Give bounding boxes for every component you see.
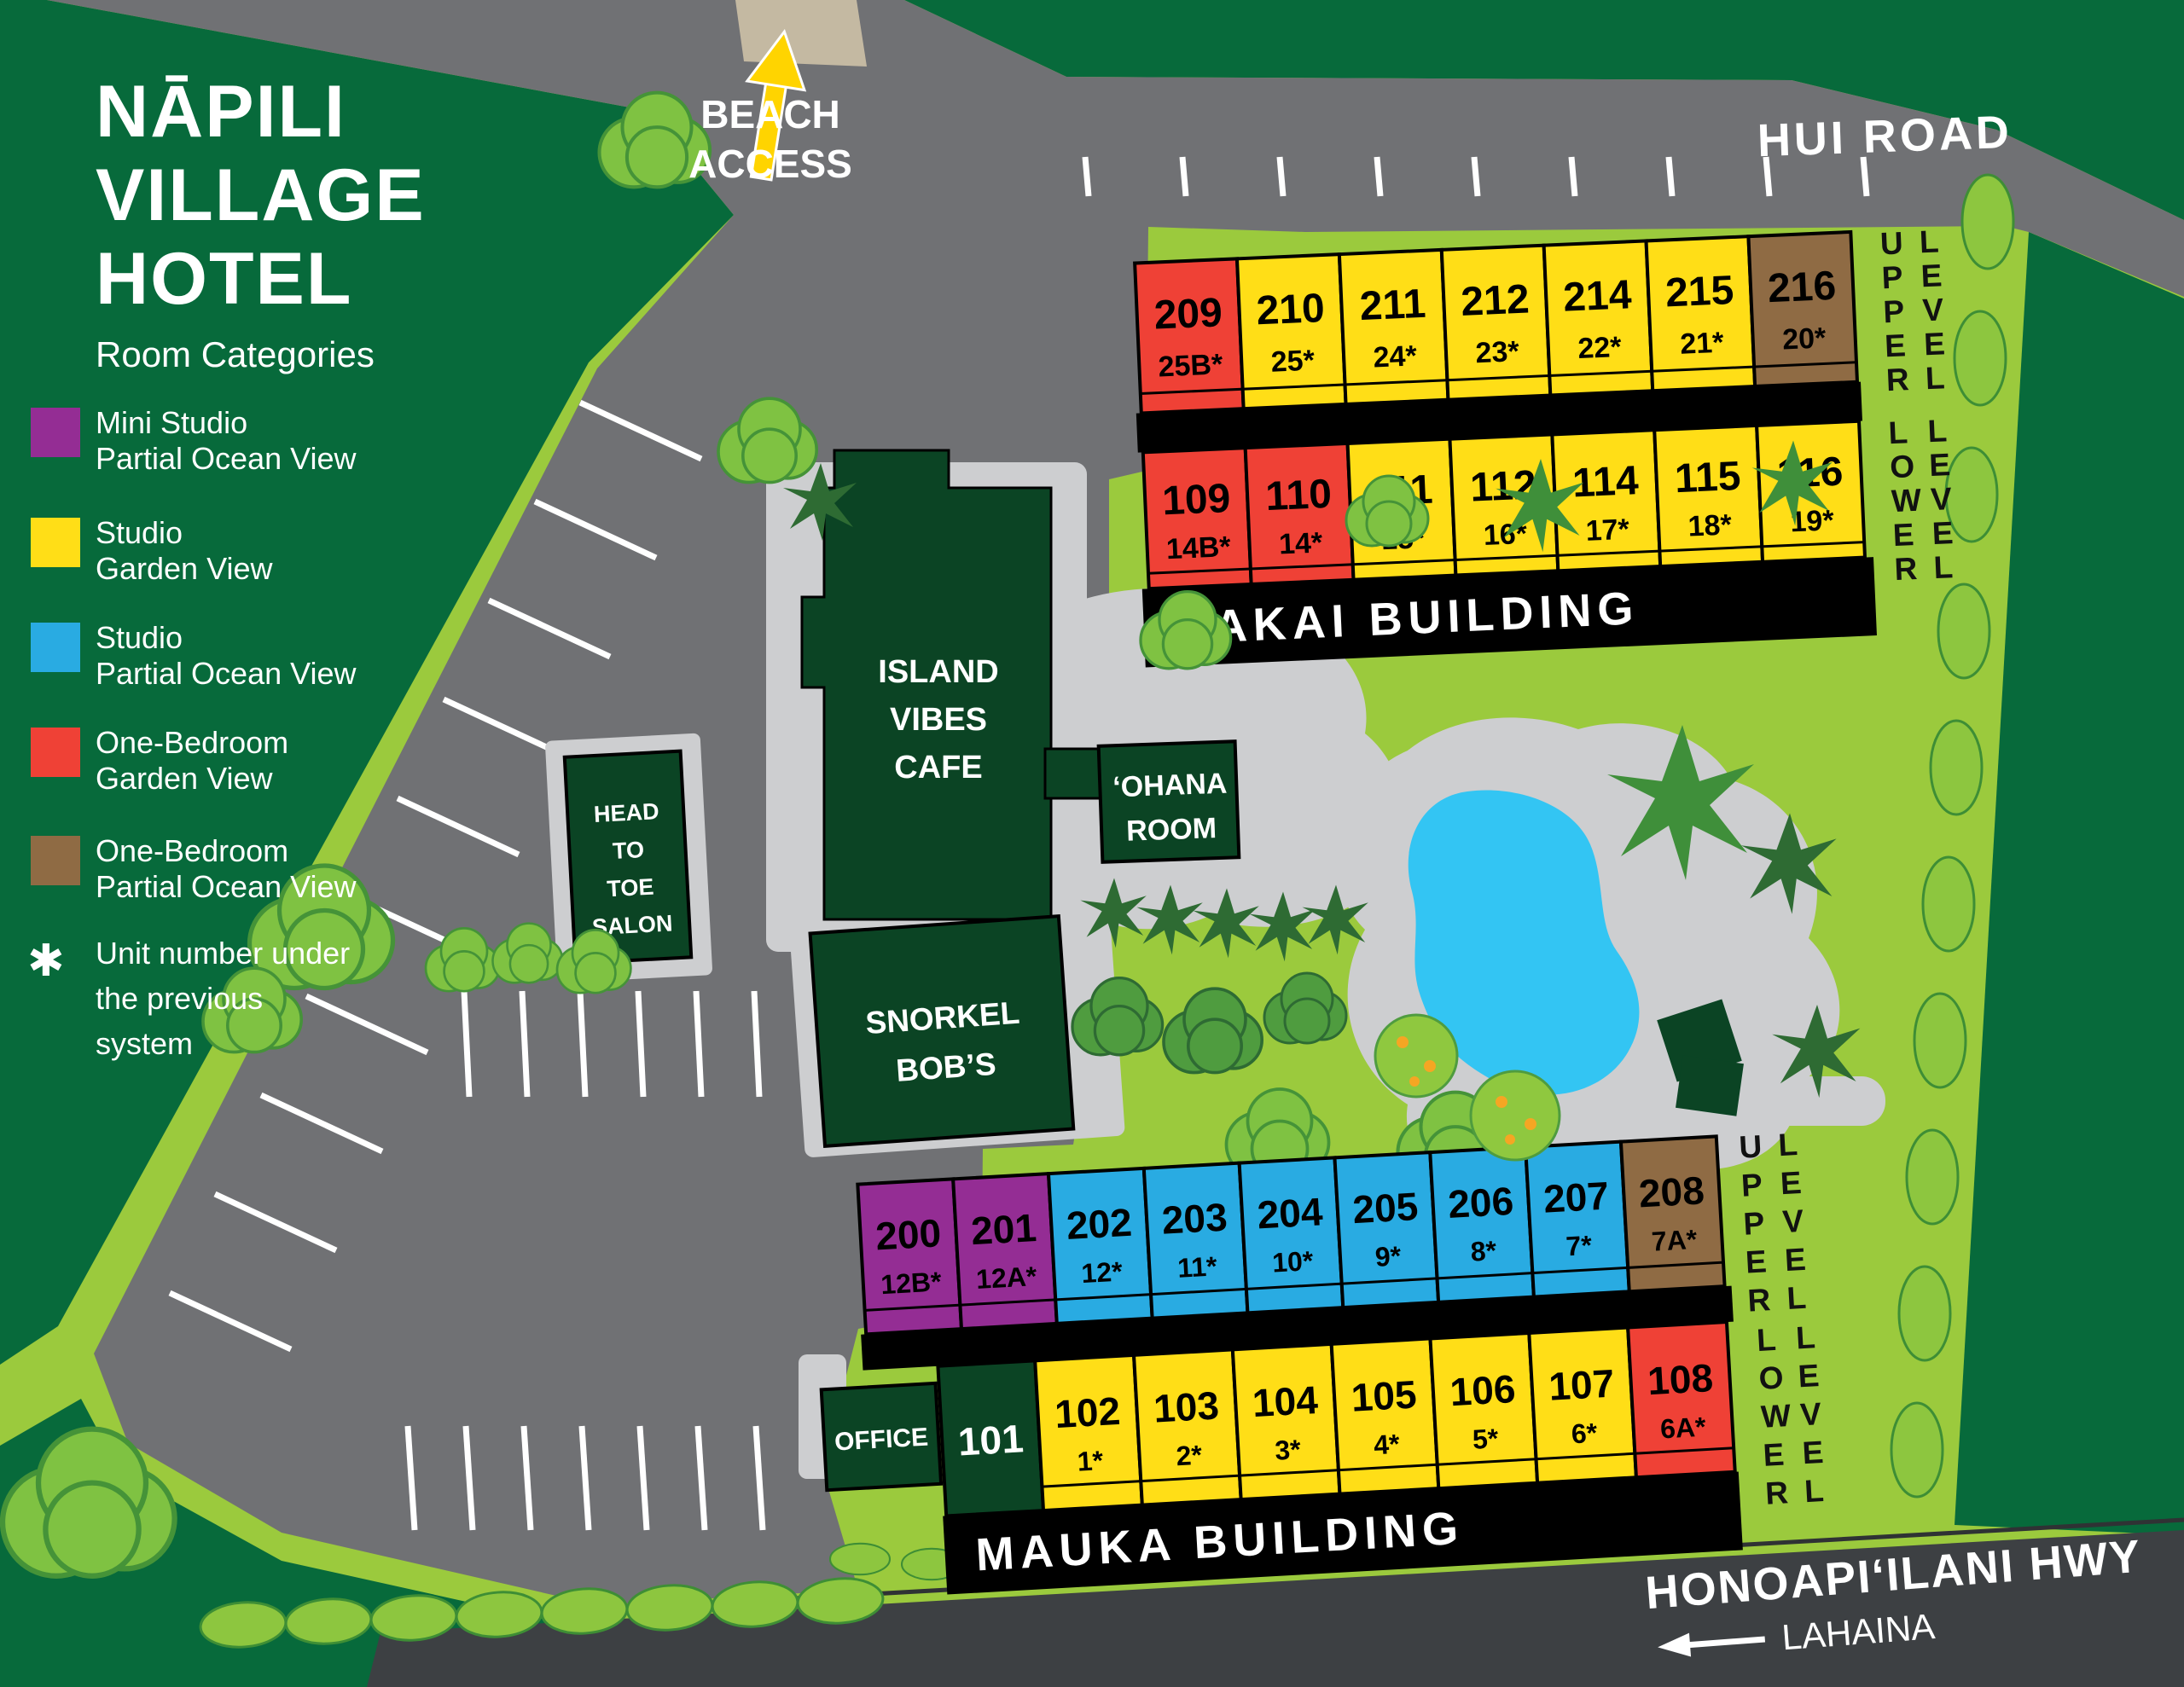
salon-label-line3: TOE — [607, 874, 655, 902]
legend-label: Partial Ocean View — [96, 441, 357, 476]
room-204-number: 204 — [1256, 1189, 1324, 1237]
napili-village-hotel-site-map: ISLAND VIBES CAFE ‘OHANA ROOM SNORKEL BO… — [0, 0, 2184, 1687]
room-210-number: 210 — [1256, 286, 1326, 333]
salon-building: HEAD TO TOE SALON — [565, 751, 691, 964]
room-105-old-number: 4* — [1373, 1429, 1401, 1461]
room-107-number: 107 — [1548, 1361, 1616, 1409]
cafe-building: ISLAND VIBES CAFE — [802, 450, 1051, 919]
legend-label: Studio — [96, 620, 183, 655]
cafe-label-line1: ISLAND — [878, 654, 998, 690]
room-102-old-number: 1* — [1077, 1445, 1105, 1477]
room-211-old-number: 24* — [1373, 339, 1418, 374]
room-109-number: 109 — [1161, 476, 1231, 524]
legend-swatch-red — [31, 728, 80, 777]
beach-access-label-line1: BEACH — [700, 92, 840, 136]
legend-label: Partial Ocean View — [96, 656, 357, 691]
room-104-old-number: 3* — [1274, 1434, 1302, 1466]
room-206-old-number: 8* — [1470, 1235, 1498, 1267]
room-202-number: 202 — [1066, 1200, 1134, 1248]
room-205-old-number: 9* — [1374, 1240, 1403, 1272]
room-215-old-number: 21* — [1680, 327, 1725, 361]
site-map-canvas: ISLAND VIBES CAFE ‘OHANA ROOM SNORKEL BO… — [0, 0, 2184, 1687]
room-210-old-number: 25* — [1270, 344, 1316, 378]
ohana-label-line2: ROOM — [1126, 812, 1217, 848]
room-205-number: 205 — [1351, 1184, 1420, 1232]
room-114-old-number: 17* — [1585, 513, 1630, 548]
room-106-number: 106 — [1449, 1366, 1517, 1414]
room-214-old-number: 22* — [1577, 331, 1623, 365]
room-207-old-number: 7* — [1565, 1230, 1594, 1262]
room-103-number: 103 — [1153, 1383, 1221, 1430]
room-103-old-number: 2* — [1176, 1440, 1204, 1472]
room-101-number: 101 — [957, 1416, 1025, 1464]
hotel-title-line2: VILLAGE — [96, 154, 426, 236]
room-109-old-number: 14B* — [1165, 530, 1232, 565]
room-203-number: 203 — [1160, 1195, 1228, 1243]
room-209-number: 209 — [1153, 290, 1223, 338]
room-110-old-number: 14* — [1278, 526, 1323, 560]
room-202-old-number: 12* — [1081, 1255, 1124, 1289]
beach-access-label-line2: ACCESS — [688, 142, 852, 186]
beach-access-path — [735, 0, 867, 67]
room-106-old-number: 5* — [1472, 1423, 1500, 1455]
legend-label: One-Bedroom — [96, 833, 288, 868]
legend-swatch-yellow — [31, 518, 80, 567]
legend-swatch-blue — [31, 623, 80, 672]
salon-label-line1: HEAD — [593, 798, 659, 827]
hotel-title-line3: HOTEL — [96, 238, 352, 320]
room-115-old-number: 18* — [1687, 508, 1733, 542]
room-212-number: 212 — [1460, 276, 1530, 324]
legend-swatch-purple — [31, 408, 80, 457]
office-label: OFFICE — [834, 1423, 929, 1457]
snorkel-bobs-building: SNORKEL BOB’S — [810, 916, 1074, 1146]
snorkel-label-line2: BOB’S — [895, 1046, 997, 1088]
mauka-building: 20012B* 20112A* 20212* 20311* 20410* 205… — [810, 1127, 1829, 1601]
makai-building: 20925B* 21025* 21124* 21223* 21422* 2152… — [1128, 223, 1958, 667]
legend-label: Studio — [96, 515, 183, 550]
legend-label: Garden View — [96, 761, 273, 796]
room-200-old-number: 12B* — [880, 1266, 943, 1300]
cafe-label-line2: VIBES — [890, 702, 987, 738]
legend-swatch-brown — [31, 836, 80, 885]
room-206-number: 206 — [1447, 1179, 1515, 1226]
legend-label: Partial Ocean View — [96, 869, 357, 904]
cafe-label-line3: CAFE — [894, 750, 982, 786]
room-212-old-number: 23* — [1475, 335, 1520, 369]
room-211-number: 211 — [1359, 281, 1427, 329]
hui-road-label: HUI ROAD — [1757, 107, 2013, 166]
legend-label: Garden View — [96, 551, 273, 586]
room-105-number: 105 — [1350, 1371, 1418, 1419]
legend-label: Mini Studio — [96, 405, 247, 440]
room-201-old-number: 12A* — [975, 1261, 1038, 1295]
room-214-number: 214 — [1562, 272, 1633, 320]
room-110-number: 110 — [1264, 472, 1333, 519]
legend-note-line: the previous — [96, 981, 263, 1016]
asterisk-icon: ✱ — [27, 936, 65, 986]
legend-label: One-Bedroom — [96, 725, 288, 760]
room-204-old-number: 10* — [1271, 1245, 1315, 1278]
legend-note-line: system — [96, 1026, 193, 1061]
room-108-number: 108 — [1647, 1355, 1715, 1403]
room-115-number: 115 — [1674, 454, 1742, 501]
room-216-number: 216 — [1767, 264, 1837, 311]
room-215-number: 215 — [1664, 268, 1734, 316]
room-102-number: 102 — [1054, 1388, 1122, 1436]
room-208-old-number: 7A* — [1651, 1224, 1699, 1257]
room-108-old-number: 6A* — [1659, 1412, 1707, 1445]
legend-heading: Room Categories — [96, 334, 375, 374]
room-207-number: 207 — [1542, 1174, 1611, 1221]
room-104-number: 104 — [1252, 1377, 1320, 1425]
ohana-label-line1: ‘OHANA — [1112, 768, 1228, 804]
hotel-title-line1: NĀPILI — [96, 71, 346, 153]
room-201-number: 201 — [970, 1205, 1038, 1253]
room-107-old-number: 6* — [1571, 1417, 1599, 1450]
room-209-old-number: 25B* — [1158, 348, 1224, 383]
room-114-number: 114 — [1571, 458, 1640, 506]
room-216-old-number: 20* — [1781, 322, 1827, 356]
room-200-number: 200 — [874, 1210, 943, 1258]
legend-note-line: Unit number under — [96, 936, 350, 971]
room-208-number: 208 — [1638, 1168, 1706, 1215]
salon-label-line2: TO — [612, 837, 645, 864]
room-203-old-number: 11* — [1176, 1250, 1218, 1284]
